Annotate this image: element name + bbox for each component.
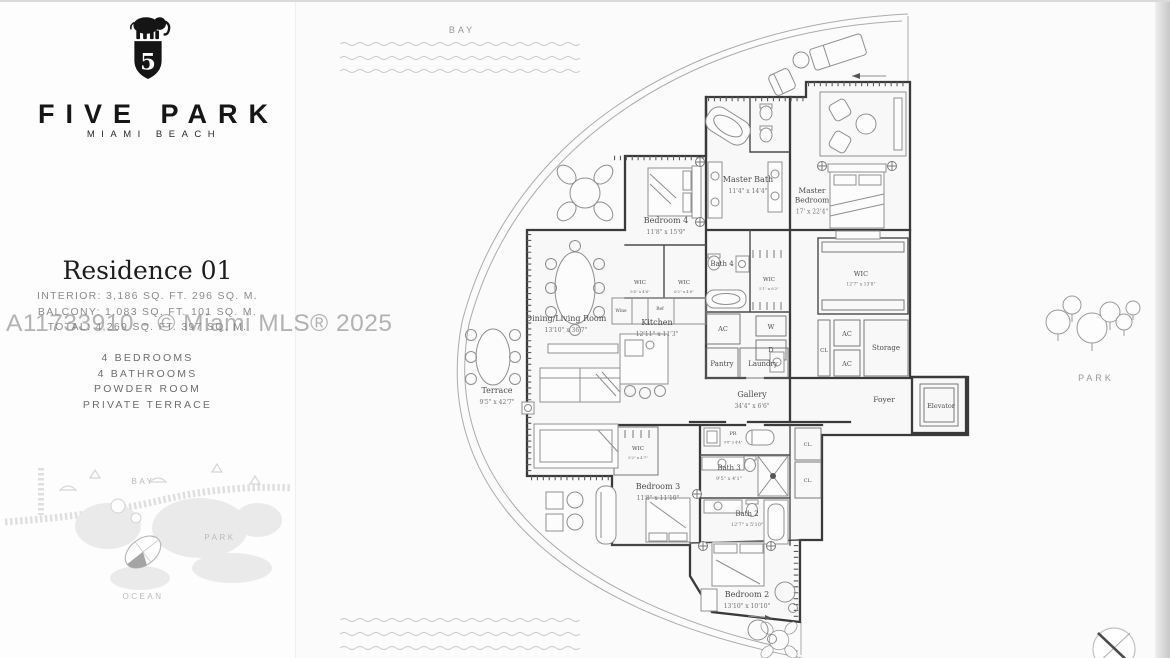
feature-bathrooms: 4 BATHROOMS — [0, 367, 295, 383]
stat-interior: INTERIOR: 3,186 SQ. FT. 296 SQ. M. — [0, 289, 295, 305]
park-label: PARK — [1078, 373, 1114, 383]
room-label-ac: AC — [841, 360, 852, 368]
bay-waves-top — [340, 43, 580, 73]
residence-features: 4 BEDROOMS 4 BATHROOMS POWDER ROOM PRIVA… — [0, 351, 295, 413]
key-map-ocean-label: OCEAN — [123, 592, 164, 601]
room-label-ac: AC — [841, 330, 852, 338]
room-label-cl-: CL. — [804, 478, 813, 484]
room-label-elevator: Elevator — [927, 402, 956, 410]
floor-plan-svg: BAY — [295, 0, 1170, 658]
room-label-w: W — [768, 323, 775, 331]
bay-waves-bottom — [340, 619, 580, 650]
svg-text:5: 5 — [140, 49, 156, 75]
page-root: { "watermark": "A11733910 - © Miami MLS®… — [0, 0, 1170, 658]
room-label-bath-4: Bath 4 — [710, 260, 734, 268]
room-label-storage: Storage — [872, 344, 900, 352]
key-map-park-label: PARK — [204, 533, 235, 542]
right-edge-strip — [1155, 0, 1170, 658]
key-map-park-blobs — [75, 498, 282, 590]
room-label-ref: Ref — [656, 307, 664, 312]
elephant-shield-5-icon: 5 — [111, 6, 185, 82]
key-map-trees — [60, 464, 260, 490]
park-trees — [1046, 296, 1140, 351]
brand-subtitle: MIAMI BEACH — [0, 129, 302, 140]
room-label-foyer: Foyer — [873, 395, 895, 404]
room-label-wine: Wine — [615, 309, 627, 314]
bay-label: BAY — [449, 25, 475, 35]
room-label-pantry: Pantry — [710, 360, 733, 368]
room-label-laundry: Laundry — [748, 360, 778, 368]
room-label-cl-: CL. — [804, 442, 813, 448]
feature-bedrooms: 4 BEDROOMS — [0, 351, 295, 367]
room-label-master: MasterBedroom17' x 22'4" — [795, 186, 829, 216]
brand-name: FIVE PARK — [0, 99, 306, 130]
feature-terrace: PRIVATE TERRACE — [0, 398, 295, 414]
top-edge-line — [0, 0, 1170, 2]
room-label-terrace: Terrace9'5" x 42'7" — [479, 386, 514, 406]
compass-icon — [1093, 628, 1135, 658]
room-label-d: D — [768, 346, 773, 354]
watermark-text: A11733910 - © Miami MLS® 2025 — [6, 310, 393, 338]
room-label-cl: CL — [820, 348, 828, 354]
residence-title: Residence 01 — [0, 256, 295, 285]
site-key-map: BAY PARK OCEAN — [0, 460, 295, 610]
feature-powder: POWDER ROOM — [0, 382, 295, 398]
key-map-bay-label: BAY — [132, 477, 155, 486]
room-label-ac: AC — [717, 325, 728, 333]
